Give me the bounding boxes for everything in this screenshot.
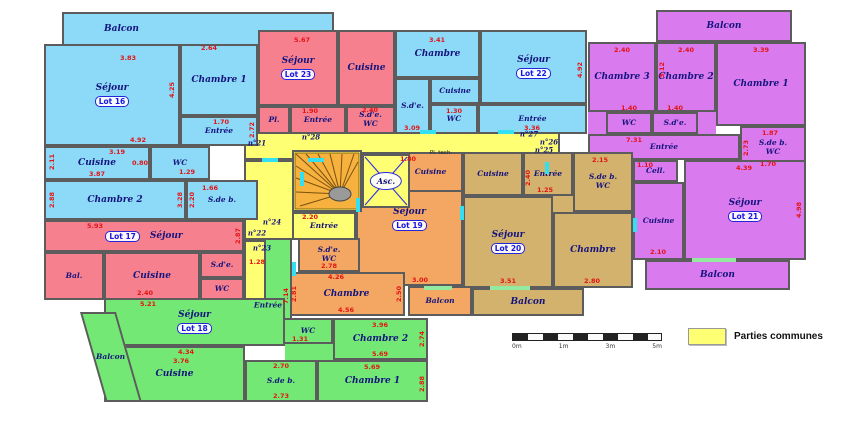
lot20-chambre-label: Chambre bbox=[570, 245, 616, 255]
dim-label: 2.20 bbox=[189, 192, 196, 208]
dim-label: 2.80 bbox=[584, 278, 600, 285]
dim-label: 3.19 bbox=[109, 149, 125, 156]
lot21-balcon-top-label: Balcon bbox=[707, 21, 742, 31]
dim-label: 5.21 bbox=[140, 301, 156, 308]
lot20-balcon-label: Balcon bbox=[511, 297, 546, 307]
dim-label: 4.25 bbox=[169, 82, 176, 98]
lot18-cuisine-label: Cuisine bbox=[156, 369, 194, 379]
scale-tick-label: 5m bbox=[652, 343, 662, 350]
dim-label: 4.56 bbox=[338, 307, 354, 314]
lot17-bal-label: Bal. bbox=[66, 272, 83, 281]
lot21-wc-room: WC bbox=[606, 112, 652, 134]
lot16-chambre2-label: Chambre 2 bbox=[87, 195, 142, 205]
lot23-sejour-label: Séjour bbox=[282, 56, 315, 66]
dim-label: 5.93 bbox=[87, 223, 103, 230]
lot21-badge: Lot 21 bbox=[728, 211, 763, 222]
window-opening bbox=[424, 286, 452, 290]
dim-label: 2.88 bbox=[49, 192, 56, 208]
lot21-entree-label: Entrée bbox=[650, 143, 678, 152]
dim-label: 2.10 bbox=[650, 249, 666, 256]
door-number-n21: n°21 bbox=[248, 139, 266, 148]
lot23-badge: Lot 23 bbox=[281, 69, 316, 80]
lot23-entree-label: Entrée bbox=[304, 116, 332, 125]
lot16-chambre1-room: Chambre 1 bbox=[180, 44, 258, 116]
lot21-sde-label: S.d'e. bbox=[664, 119, 687, 128]
dim-label: 1.40 bbox=[621, 105, 637, 112]
dim-label: 1.66 bbox=[202, 185, 218, 192]
dim-label: 0.80 bbox=[132, 160, 148, 167]
lot18-sdb-label: S.de b. bbox=[267, 377, 295, 386]
door-opening bbox=[262, 158, 278, 162]
lot20-wc-label: WC bbox=[596, 182, 610, 191]
lot23-pl-room: Pl. bbox=[258, 106, 290, 134]
lot21-wc2-label: WC bbox=[766, 148, 780, 157]
dim-label: 1.31 bbox=[292, 336, 308, 343]
lot21-chambre1-label: Chambre 1 bbox=[733, 79, 788, 89]
common-entree-label: Entrée bbox=[310, 222, 338, 231]
lot16-sdb-label: S.de b. bbox=[208, 196, 236, 205]
lot16-chambre2-room: Chambre 2 bbox=[44, 180, 186, 220]
door-number-n22: n°22 bbox=[248, 229, 266, 238]
dim-label: 1.87 bbox=[762, 130, 778, 137]
dim-label: 2.15 bbox=[592, 157, 608, 164]
lot19-balcon-label: Balcon bbox=[425, 297, 454, 306]
lot20-sejour-room: Séjour Lot 20 bbox=[463, 196, 553, 288]
lot17-cuisine-label: Cuisine bbox=[133, 271, 171, 281]
lot17-sde-room: S.d'e. bbox=[200, 252, 244, 278]
lot16-badge: Lot 16 bbox=[95, 96, 130, 107]
scale-bar-segments bbox=[512, 333, 662, 341]
door-opening bbox=[356, 198, 360, 212]
lot16-sejour-room: Séjour Lot 16 bbox=[44, 44, 180, 146]
dim-label: 2.64 bbox=[201, 45, 217, 52]
lot16-entree-label: Entrée bbox=[205, 127, 233, 136]
dim-label: 1.10 bbox=[637, 162, 653, 169]
lot20-cuisine-room: Cuisine bbox=[463, 152, 523, 196]
lot18-chambre2-label: Chambre 2 bbox=[353, 334, 408, 344]
dim-label: 2.88 bbox=[419, 376, 426, 392]
scale-tick-label: 1m bbox=[559, 343, 569, 350]
dim-label: 4.92 bbox=[130, 137, 146, 144]
lot17-sejour-room: Lot 17 Séjour bbox=[44, 220, 244, 252]
dim-label: 1.30 bbox=[446, 108, 462, 115]
dim-label: 5.67 bbox=[294, 37, 310, 44]
scale-tick-label: 3m bbox=[606, 343, 616, 350]
dim-label: 7.31 bbox=[626, 137, 642, 144]
dim-label: 2.40 bbox=[362, 107, 378, 114]
door-opening bbox=[308, 158, 324, 162]
dim-label: 2.81 bbox=[291, 286, 298, 302]
door-opening bbox=[292, 262, 296, 276]
door-opening bbox=[420, 130, 436, 134]
lot19-balcon-room: Balcon bbox=[408, 286, 472, 316]
dim-label: 1.25 bbox=[537, 187, 553, 194]
dim-label: 4.92 bbox=[577, 62, 584, 78]
lot17-wc-room: WC bbox=[200, 278, 244, 300]
lot19-cuisine-label: Cuisine bbox=[415, 168, 447, 177]
dim-label: 1.28 bbox=[249, 259, 265, 266]
door-number-n28: n°28 bbox=[302, 133, 320, 142]
lot16-cuisine-label: Cuisine bbox=[78, 158, 116, 168]
dim-label: 3.00 bbox=[412, 277, 428, 284]
door-number-n23: n°23 bbox=[253, 244, 271, 253]
lot21-sde-room: S.d'e. bbox=[652, 112, 698, 134]
legend-label: Parties communes bbox=[734, 331, 823, 342]
dim-label: 2.87 bbox=[235, 228, 242, 244]
door-opening bbox=[498, 130, 514, 134]
dim-label: 3.96 bbox=[372, 322, 388, 329]
dim-label: 3.83 bbox=[120, 55, 136, 62]
lot22-cuisine-room: Cuisine bbox=[430, 78, 480, 104]
tech-closet-label: Pl. tech. bbox=[430, 150, 452, 156]
lot17-bal-room: Bal. bbox=[44, 252, 104, 300]
dim-label: 5.69 bbox=[364, 364, 380, 371]
dim-label: 7.14 bbox=[283, 288, 290, 304]
dim-label: 1.90 bbox=[302, 108, 318, 115]
lot21-sejour-label: Séjour bbox=[729, 198, 762, 208]
dim-label: 3.36 bbox=[524, 125, 540, 132]
lot21-chambre1-room: Chambre 1 bbox=[716, 42, 806, 126]
dim-label: 2.74 bbox=[419, 331, 426, 347]
lot17-wc-label: WC bbox=[215, 285, 229, 294]
lot21-sejour-room: Séjour Lot 21 bbox=[684, 160, 806, 260]
dim-label: 3.76 bbox=[173, 358, 189, 365]
lot23-cuisine-room: Cuisine bbox=[338, 30, 395, 106]
dim-label: 3.28 bbox=[177, 192, 184, 208]
lot23-cuisine-label: Cuisine bbox=[348, 63, 386, 73]
dim-label: 2.70 bbox=[273, 363, 289, 370]
lot20-sejour-label: Séjour bbox=[492, 230, 525, 240]
dim-label: 5.69 bbox=[372, 351, 388, 358]
window-opening bbox=[692, 258, 736, 262]
dim-label: 2.73 bbox=[743, 140, 750, 156]
dim-label: 2.40 bbox=[525, 170, 532, 186]
lot22-wc-label: WC bbox=[447, 115, 461, 124]
lot20-cuisine-label: Cuisine bbox=[477, 170, 509, 179]
lot21-cuisine-label: Cuisine bbox=[643, 217, 675, 226]
dim-label: 1.40 bbox=[667, 105, 683, 112]
lot21-balcon-top-room: Balcon bbox=[656, 10, 792, 42]
dim-label: 2.78 bbox=[321, 263, 337, 270]
lot21-chambre2-label: Chambre 2 bbox=[658, 72, 713, 82]
dim-label: 2.20 bbox=[302, 214, 318, 221]
lot16-sdb-room: S.de b. bbox=[186, 180, 258, 220]
dim-label: 3.12 bbox=[659, 62, 666, 78]
dim-label: 1.70 bbox=[213, 119, 229, 126]
lot19-badge: Lot 19 bbox=[392, 220, 427, 231]
lot16-sejour-label: Séjour bbox=[96, 83, 129, 93]
lot21-balcon-bottom-label: Balcon bbox=[700, 270, 735, 280]
lot16-balcon-label: Balcon bbox=[104, 24, 139, 34]
lot23-wc-label: WC bbox=[363, 120, 377, 129]
scale-bar-labels: 0m 1m 3m 5m bbox=[512, 343, 662, 350]
lot22-chambre-label: Chambre bbox=[415, 49, 461, 59]
scale-bar: 0m 1m 3m 5m bbox=[512, 333, 662, 350]
lot22-cuisine-label: Cuisine bbox=[439, 87, 471, 96]
dim-label: 4.98 bbox=[796, 202, 803, 218]
dim-label: 2.73 bbox=[273, 393, 289, 400]
dim-label: 4.26 bbox=[328, 274, 344, 281]
lot21-balcon-bottom-room: Balcon bbox=[645, 260, 790, 290]
lot19-chambre-label: Chambre bbox=[324, 289, 370, 299]
lot19-sejour-label: Séjour bbox=[393, 207, 426, 217]
scale-tick-label: 0m bbox=[512, 343, 522, 350]
dim-label: 2.40 bbox=[678, 47, 694, 54]
door-opening bbox=[545, 162, 549, 174]
dim-label: 2.40 bbox=[137, 290, 153, 297]
lot22-sejour-label: Séjour bbox=[517, 55, 550, 65]
lot22-badge: Lot 22 bbox=[516, 68, 551, 79]
lot21-wc-label: WC bbox=[622, 119, 636, 128]
dim-label: 3.41 bbox=[429, 37, 445, 44]
lot22-sejour-room: Séjour Lot 22 bbox=[480, 30, 587, 104]
lot20-balcon-room: Balcon bbox=[472, 288, 584, 316]
lot16-chambre1-label: Chambre 1 bbox=[191, 75, 246, 85]
dim-label: 1.70 bbox=[760, 161, 776, 168]
door-number-n24: n°24 bbox=[263, 218, 281, 227]
dim-label: 2.72 bbox=[249, 122, 256, 138]
dim-label: 2.11 bbox=[49, 154, 56, 170]
door-opening bbox=[300, 172, 304, 186]
lot18-entree-label: Entrée bbox=[254, 302, 282, 311]
lot22-entree-label: Entrée bbox=[518, 115, 546, 124]
door-opening bbox=[460, 206, 464, 220]
lot18-badge: Lot 18 bbox=[177, 323, 212, 334]
dim-label: 3.39 bbox=[753, 47, 769, 54]
lot16-wc-label: WC bbox=[173, 159, 187, 168]
lot17-sejour-label: Séjour bbox=[150, 231, 183, 241]
dim-label: 4.34 bbox=[178, 349, 194, 356]
dim-label: 2.50 bbox=[396, 286, 403, 302]
door-opening bbox=[633, 218, 637, 232]
window-opening bbox=[490, 286, 530, 290]
lot22-sde-label: S.d'e. bbox=[401, 102, 424, 111]
lot18-sejour-label: Séjour bbox=[178, 310, 211, 320]
legend: Parties communes bbox=[688, 328, 823, 345]
dim-label: 4.39 bbox=[736, 165, 752, 172]
lot21-chambre3-label: Chambre 3 bbox=[594, 72, 649, 82]
legend-swatch bbox=[688, 328, 726, 345]
lot23-pl-label: Pl. bbox=[268, 116, 279, 125]
dim-label: 3.51 bbox=[500, 278, 516, 285]
dim-label: 2.40 bbox=[614, 47, 630, 54]
lot17-badge: Lot 17 bbox=[105, 231, 140, 242]
dim-label: 3.09 bbox=[404, 125, 420, 132]
dim-label: 1.29 bbox=[179, 169, 195, 176]
lot18-balcon-label: Balcon bbox=[96, 353, 125, 362]
dim-label: 1.80 bbox=[400, 156, 416, 163]
lot18-chambre1-label: Chambre 1 bbox=[345, 376, 400, 386]
dim-label: 3.87 bbox=[89, 171, 105, 178]
door-number-n25: n°25 bbox=[535, 146, 553, 155]
floor-plan: Balcon Séjour Lot 16 Chambre 1 Entrée Cu… bbox=[0, 0, 855, 430]
lot20-badge: Lot 20 bbox=[491, 243, 526, 254]
lot17-sde-label: S.d'e. bbox=[211, 261, 234, 270]
